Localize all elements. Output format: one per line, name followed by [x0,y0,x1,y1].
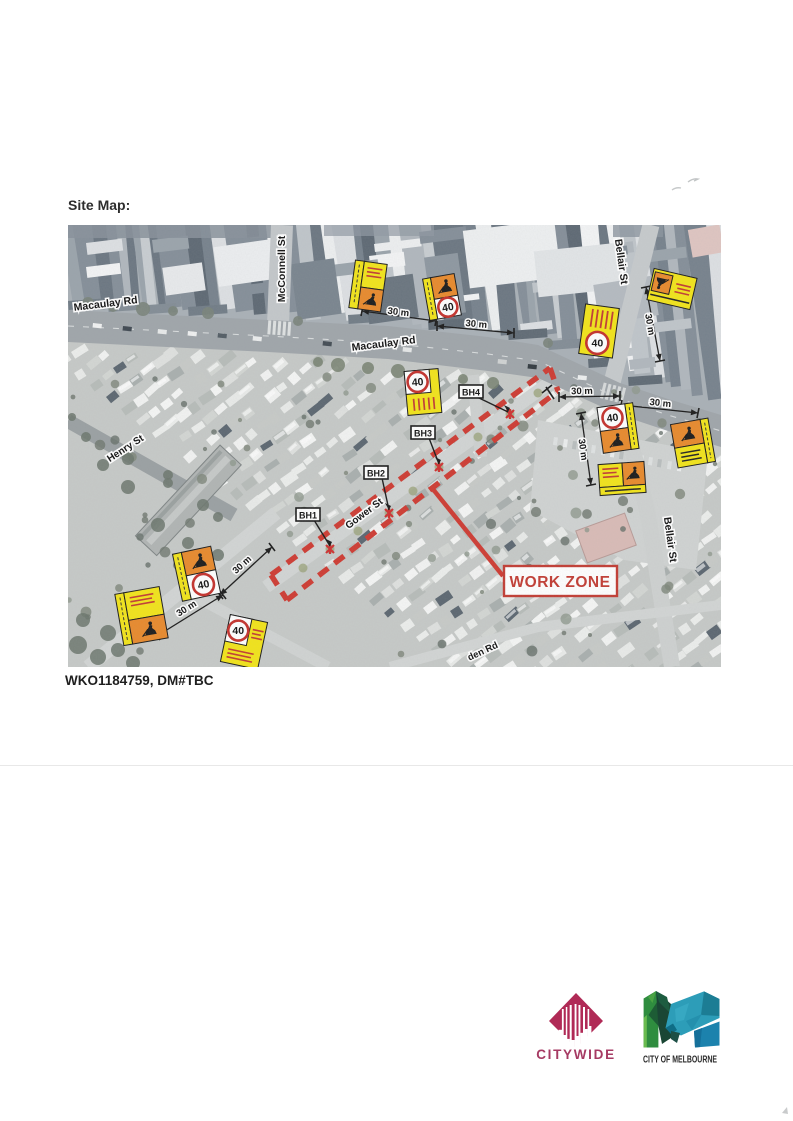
svg-text:CITY OF MELBOURNE: CITY OF MELBOURNE [643,1054,717,1066]
svg-text:CITYWIDE: CITYWIDE [536,1047,616,1062]
